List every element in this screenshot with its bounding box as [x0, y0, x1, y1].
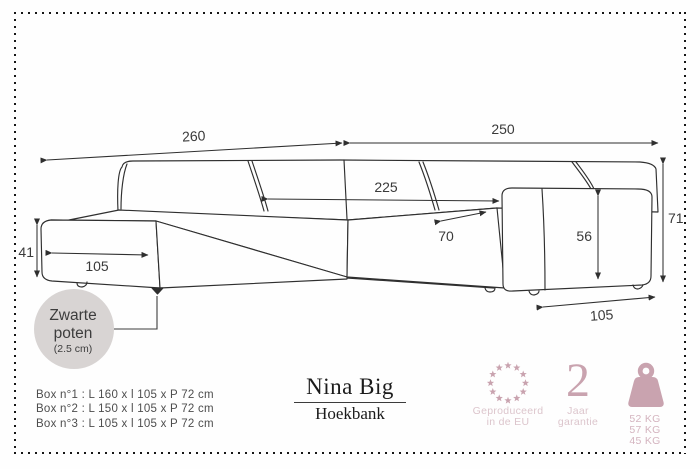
spec-sheet: 260 250 225 70 56 71 41 105 105 Zwarte p…	[0, 0, 700, 469]
product-name: Nina Big	[272, 375, 428, 399]
warranty-number: 2	[556, 362, 600, 400]
eu-label: Geproduceerd in de EU	[466, 406, 550, 428]
box-dimensions-list: Box n°1 : L 160 x l 105 x P 72 cm Box n°…	[36, 388, 214, 431]
dimension-label-56: 56	[576, 228, 592, 244]
box-dimension-item: Box n°3 : L 105 x l 105 x P 72 cm	[36, 417, 214, 431]
dimension-label-225: 225	[374, 179, 398, 195]
legs-note-line3: (2.5 cm)	[54, 343, 93, 355]
box-dimension-item: Box n°1 : L 160 x l 105 x P 72 cm	[36, 388, 214, 402]
legs-note-line1: Zwarte	[49, 307, 96, 324]
seat-top-right	[347, 208, 505, 288]
weight-list: 52 KG 57 KG 45 KG	[614, 414, 676, 447]
arm-foot	[529, 291, 539, 295]
sofa-dimension-diagram: 260 250 225 70 56 71 41 105 105 Zwarte p…	[0, 0, 700, 375]
warranty-label: Jaar garantie	[546, 406, 610, 428]
weight-item: 45 KG	[614, 436, 676, 447]
dotted-border-bottom	[14, 452, 686, 454]
product-type: Hoekbank	[272, 405, 428, 423]
dimension-label-70: 70	[438, 228, 454, 244]
dimension-label-260: 260	[182, 127, 206, 144]
dimension-arrow-105-right	[543, 297, 655, 307]
box-dimension-item: Box n°2 : L 150 x l 105 x P 72 cm	[36, 402, 214, 416]
dimension-arrow-260	[47, 143, 342, 160]
dimension-label-105-right: 105	[589, 306, 614, 324]
title-divider	[294, 402, 406, 403]
product-title-block: Nina Big Hoekbank	[272, 375, 428, 423]
dimension-label-71: 71	[668, 210, 684, 226]
eu-stars-icon	[480, 357, 536, 409]
sofa-foot	[485, 288, 495, 292]
dimension-label-105-left: 105	[85, 258, 109, 274]
dimension-label-41: 41	[18, 244, 34, 260]
legs-note: Zwarte poten (2.5 cm)	[34, 289, 157, 369]
dimension-label-250: 250	[491, 121, 515, 137]
sofa-foot-corner	[152, 288, 163, 294]
legs-note-line2: poten	[54, 325, 93, 342]
weight-icon	[623, 361, 669, 411]
sofa-drawing	[41, 160, 658, 295]
legs-note-connector	[114, 296, 157, 329]
